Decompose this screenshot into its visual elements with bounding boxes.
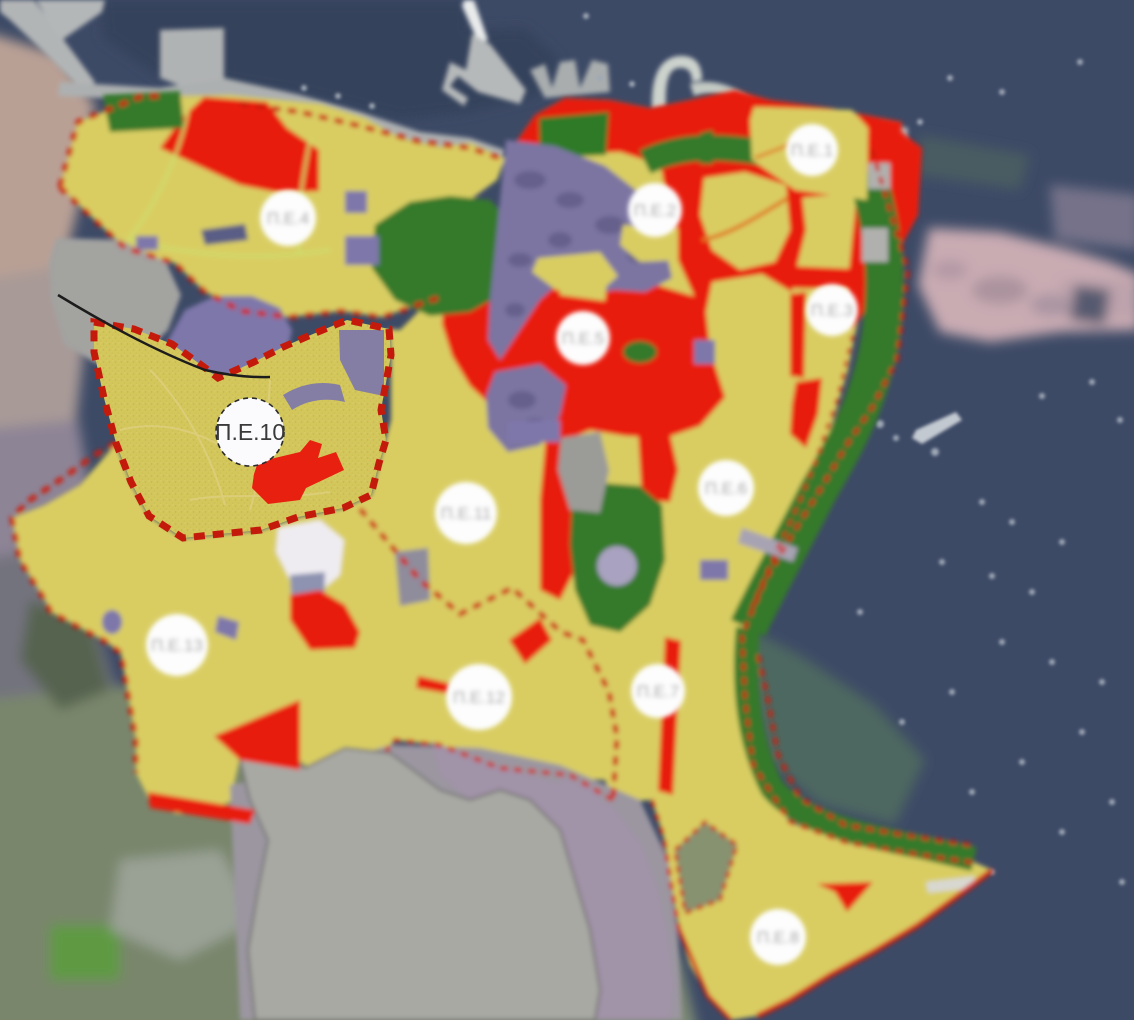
svg-text:Π.Ε.12: Π.Ε.12 (453, 688, 505, 707)
svg-text:Π.Ε.13: Π.Ε.13 (151, 636, 203, 655)
svg-text:Π.Ε.5: Π.Ε.5 (562, 329, 605, 348)
svg-text:Π.Ε.3: Π.Ε.3 (811, 301, 854, 320)
svg-text:Π.Ε.8: Π.Ε.8 (757, 928, 800, 947)
svg-text:Π.Ε.10: Π.Ε.10 (215, 419, 285, 445)
svg-text:Π.Ε.4: Π.Ε.4 (267, 209, 310, 228)
svg-text:Π.Ε.2: Π.Ε.2 (634, 201, 677, 220)
svg-text:Π.Ε.7: Π.Ε.7 (637, 682, 680, 701)
svg-text:Π.Ε.11: Π.Ε.11 (441, 504, 492, 523)
svg-text:Π.Ε.6: Π.Ε.6 (705, 479, 748, 498)
svg-text:Π.Ε.1: Π.Ε.1 (791, 141, 834, 160)
